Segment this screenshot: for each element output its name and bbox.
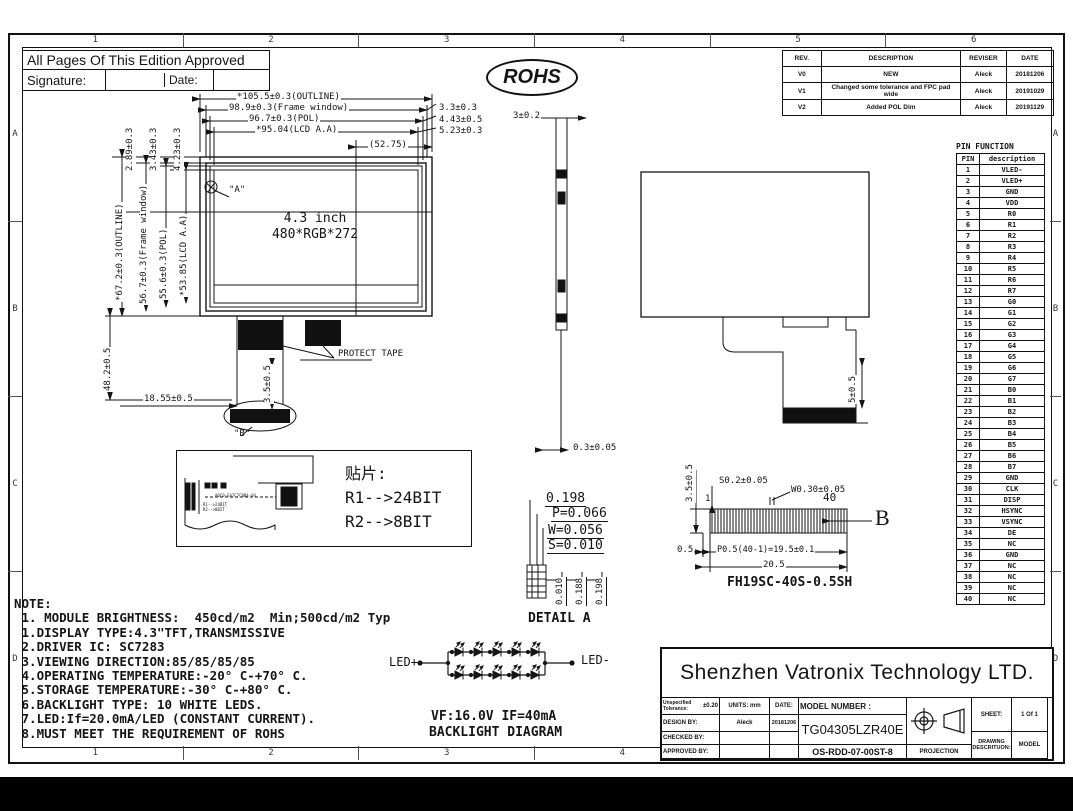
pin-row: 15 G2	[957, 319, 1045, 330]
revision-row: V1 Changed some tolerance and FPC pad wi…	[783, 83, 1054, 100]
pin-row: 11 R6	[957, 275, 1045, 286]
tolerance-label: Unspecified Tolerance:	[663, 700, 701, 712]
approval-box: All Pages Of This Edition Approved Signa…	[22, 50, 270, 91]
pin-description: DE	[980, 528, 1045, 539]
pin-description: R0	[980, 209, 1045, 220]
smt-tiny-chip-label: A0C0-EA7C7C0B4-04	[215, 494, 256, 498]
rev-date: 20191029	[1006, 83, 1053, 100]
pin-description: R4	[980, 253, 1045, 264]
rev-id: V0	[783, 67, 822, 83]
detail-a-dim-1: 0.198	[545, 492, 586, 507]
company-name: Shenzhen Vatronix Technology LTD.	[662, 649, 1052, 698]
callout-a-label: "A"	[228, 186, 246, 196]
pin-description: GND	[980, 187, 1045, 198]
checked-date-value	[770, 732, 799, 745]
revision-header-row: REV.DESCRIPTIONREVISERDATE	[783, 51, 1054, 67]
units-cell: UNITS: mm	[720, 698, 770, 715]
approved-date-value	[770, 745, 799, 759]
designer-name: Aleck	[720, 715, 770, 732]
dim-top-left-3: 4.23±0.3	[174, 127, 184, 172]
pin-number: 16	[957, 330, 980, 341]
pin-row: 29 GND	[957, 473, 1045, 484]
pin-row: 39 NC	[957, 583, 1045, 594]
pin-number: 7	[957, 231, 980, 242]
dim-rear-pad: 5±0.5	[849, 375, 859, 404]
revision-header-cell: DATE	[1006, 51, 1053, 67]
pin-description: G1	[980, 308, 1045, 319]
dim-right-1: 3.3±0.3	[438, 104, 478, 114]
pin-number: 24	[957, 418, 980, 429]
connector-pin-last: 40	[822, 492, 837, 504]
pin-number: 11	[957, 275, 980, 286]
pin-description: R5	[980, 264, 1045, 275]
pin-number: 19	[957, 363, 980, 374]
pin-row: 37 NC	[957, 561, 1045, 572]
signature-field[interactable]	[105, 70, 164, 90]
pin-number: 35	[957, 539, 980, 550]
pin-row: 28 B7	[957, 462, 1045, 473]
design-by-label: DESIGN BY:	[662, 715, 720, 732]
led-minus-label: LED-	[580, 654, 611, 667]
connector-dim-space: S0.2±0.05	[718, 477, 769, 487]
smt-option-text: 贴片: R1-->24BIT R2-->8BIT	[345, 462, 441, 534]
dim-aa-height: *53.85(LCD A.A)	[180, 214, 190, 297]
revision-row: V2 Added POL Dim Aleck 20191129	[783, 100, 1054, 116]
detail-a-dim-3: W=0.056	[547, 524, 604, 539]
rev-id: V2	[783, 100, 822, 116]
pin-description: G6	[980, 363, 1045, 374]
pin-row: 8 R3	[957, 242, 1045, 253]
pin-number: 26	[957, 440, 980, 451]
pin-row: 4 VDD	[957, 198, 1045, 209]
pin-row: 13 G0	[957, 297, 1045, 308]
dim-fpc-offset: 18.55±0.5	[143, 395, 194, 405]
pin-row: 23 B2	[957, 407, 1045, 418]
rev-description: Changed some tolerance and FPC pad wide	[821, 83, 961, 100]
pin-description: NC	[980, 539, 1045, 550]
pin-number: 38	[957, 572, 980, 583]
bottom-black-bar	[0, 777, 1073, 811]
pin-table-title: PIN FUNCTION	[956, 142, 1045, 151]
pin-number: 8	[957, 242, 980, 253]
detail-a-dim-2: P=0.066	[551, 507, 608, 522]
pin-description: VSYNC	[980, 517, 1045, 528]
display-resolution: 480*RGB*272	[250, 227, 380, 243]
model-number-label: MODEL NUMBER :	[799, 698, 907, 715]
pin-row: 31 DISP	[957, 495, 1045, 506]
pin-description: B0	[980, 385, 1045, 396]
pin-row: 35 NC	[957, 539, 1045, 550]
pin-header-cell: PIN	[957, 154, 980, 165]
display-spec: 4.3 inch 480*RGB*272	[250, 211, 380, 243]
approved-by-value	[720, 745, 770, 759]
smt-option-r2: R2-->8BIT	[345, 510, 441, 534]
dim-outline-width: *105.5±0.3(OUTLINE)	[236, 93, 341, 103]
pin-description: GND	[980, 550, 1045, 561]
pin-description: B5	[980, 440, 1045, 451]
smt-tiny-r2: R2-->8BIT	[203, 508, 225, 512]
pin-row: 25 B4	[957, 429, 1045, 440]
revision-row: V0 NEW Aleck 20181206	[783, 67, 1054, 83]
pin-number: 6	[957, 220, 980, 231]
pin-row: 12 R7	[957, 286, 1045, 297]
pin-row: 34 DE	[957, 528, 1045, 539]
doc-number: OS-RDD-07-00ST-8	[799, 745, 907, 759]
pin-number: 21	[957, 385, 980, 396]
connector-pin-first: 1	[704, 495, 711, 505]
pin-row: 19 G6	[957, 363, 1045, 374]
note-line: 4.OPERATING TEMPERATURE:-20° C-+70° C.	[14, 669, 390, 683]
pin-description: B6	[980, 451, 1045, 462]
pin-row: 20 G7	[957, 374, 1045, 385]
pin-description: G3	[980, 330, 1045, 341]
pin-number: 32	[957, 506, 980, 517]
pin-number: 18	[957, 352, 980, 363]
pin-number: 3	[957, 187, 980, 198]
pin-description: NC	[980, 594, 1045, 605]
pin-row: 26 B5	[957, 440, 1045, 451]
detail-a-caption: DETAIL A	[527, 612, 592, 626]
connector-part-number: FH19SC-40S-0.5SH	[726, 576, 853, 590]
design-date: 20181206	[770, 715, 799, 732]
rev-reviser: Aleck	[961, 100, 1006, 116]
pin-description: VLED-	[980, 165, 1045, 176]
dim-pol-height: 55.6±0.3(POL)	[160, 228, 170, 300]
pin-number: 1	[957, 165, 980, 176]
projection-symbol-cell	[907, 698, 972, 745]
pin-number: 25	[957, 429, 980, 440]
date-label-cell: DATE:	[770, 698, 799, 715]
pin-number: 2	[957, 176, 980, 187]
note-line: 1. MODULE BRIGHTNESS: 450cd/m2 Min;500cd…	[14, 611, 390, 625]
rev-reviser: Aleck	[961, 83, 1006, 100]
pin-row: 14 G1	[957, 308, 1045, 319]
callout-b-label: "B"	[233, 430, 251, 440]
connector-dim-width: W0.30±0.05	[790, 486, 846, 496]
sheet-value-cell: 1 Of 1	[1012, 698, 1048, 732]
pin-number: 36	[957, 550, 980, 561]
dim-side-bottom: 0.3±0.05	[572, 444, 617, 454]
pin-description: NC	[980, 583, 1045, 594]
pin-row: 27 B6	[957, 451, 1045, 462]
pin-number: 28	[957, 462, 980, 473]
pin-description: CLK	[980, 484, 1045, 495]
notes-section: NOTE: 1. MODULE BRIGHTNESS: 450cd/m2 Min…	[14, 597, 390, 741]
rohs-badge: ROHS	[486, 59, 578, 96]
tolerance-value: ±0.20	[703, 703, 718, 709]
detail-a-dim-4: S=0.010	[547, 539, 604, 554]
rev-date: 20181206	[1006, 67, 1053, 83]
pin-description: G2	[980, 319, 1045, 330]
rev-description: NEW	[821, 67, 961, 83]
dim-top-left-1: 2.89±0.3	[126, 127, 136, 172]
connector-callout-b: B	[874, 506, 891, 530]
side-view-lines	[540, 118, 586, 450]
dim-right-2: 4.43±0.5	[438, 116, 483, 126]
pin-row: 21 B0	[957, 385, 1045, 396]
pin-number: 29	[957, 473, 980, 484]
revision-header-cell: REVISER	[961, 51, 1006, 67]
pin-header-cell: description	[980, 154, 1045, 165]
pin-number: 30	[957, 484, 980, 495]
pin-number: 5	[957, 209, 980, 220]
pin-number: 33	[957, 517, 980, 528]
dim-pol-width: 96.7±0.3(POL)	[248, 115, 320, 125]
dim-half-width: (52.75)	[368, 141, 408, 151]
backlight-lines	[418, 642, 574, 680]
pin-description: G4	[980, 341, 1045, 352]
pin-description: NC	[980, 572, 1045, 583]
revision-header-cell: REV.	[783, 51, 822, 67]
pin-row: 33 VSYNC	[957, 517, 1045, 528]
revision-header-cell: DESCRIPTION	[821, 51, 961, 67]
note-line: 8.MUST MEET THE REQUIREMENT OF ROHS	[14, 727, 390, 741]
pin-row: 32 HSYNC	[957, 506, 1045, 517]
pin-description: B3	[980, 418, 1045, 429]
model-word-cell: MODEL	[1012, 732, 1048, 759]
pin-number: 20	[957, 374, 980, 385]
note-line: 1.DISPLAY TYPE:4.3"TFT,TRANSMISSIVE	[14, 626, 390, 640]
connector-dim-height: 3.5±0.5	[686, 463, 696, 503]
tolerance-cell: Unspecified Tolerance: ±0.20	[662, 698, 720, 715]
pin-description: R3	[980, 242, 1045, 253]
dim-side-thickness: 3±0.2	[512, 112, 541, 122]
note-line: 6.BACKLIGHT TYPE: 10 WHITE LEDS.	[14, 698, 390, 712]
pin-description: B7	[980, 462, 1045, 473]
note-line: 7.LED:If=20.0mA/LED (CONSTANT CURRENT).	[14, 712, 390, 726]
projection-label: PROJECTION	[907, 745, 972, 759]
pin-number: 31	[957, 495, 980, 506]
pin-description: GND	[980, 473, 1045, 484]
connector-dim-end: 0.5	[676, 546, 694, 556]
pin-description: G5	[980, 352, 1045, 363]
pin-number: 14	[957, 308, 980, 319]
title-block: Shenzhen Vatronix Technology LTD. Unspec…	[660, 647, 1054, 761]
dim-outline-height: *67.2±0.3(OUTLINE)	[116, 202, 126, 302]
pin-table: PINdescription 1 VLED- 2 VLED+ 3 GND 4 V…	[956, 153, 1045, 605]
date-field[interactable]	[213, 70, 269, 90]
pin-row: 38 NC	[957, 572, 1045, 583]
pin-description: G0	[980, 297, 1045, 308]
dim-frame-width: 98.9±0.3(Frame window)	[228, 104, 349, 114]
front-view-tapes	[230, 320, 341, 423]
signature-label: Signature:	[23, 73, 105, 88]
backlight-spec: VF:16.0V IF=40mA	[430, 710, 557, 724]
pin-number: 15	[957, 319, 980, 330]
connector-dim-total: 20.5	[762, 561, 786, 571]
pin-description: VLED+	[980, 176, 1045, 187]
date-label: Date:	[164, 73, 213, 87]
checked-by-value	[720, 732, 770, 745]
pin-row: 16 G3	[957, 330, 1045, 341]
pin-description: R1	[980, 220, 1045, 231]
notes-title: NOTE:	[14, 597, 390, 611]
dim-aa-width: *95.04(LCD A.A)	[255, 126, 338, 136]
led-plus-label: LED+	[388, 656, 419, 669]
smt-option-r1: R1-->24BIT	[345, 486, 441, 510]
pin-number: 4	[957, 198, 980, 209]
pin-description: R2	[980, 231, 1045, 242]
pin-row: 7 R2	[957, 231, 1045, 242]
pin-description: HSYNC	[980, 506, 1045, 517]
pin-description: NC	[980, 561, 1045, 572]
backlight-caption: BACKLIGHT DIAGRAM	[428, 726, 563, 740]
pin-number: 34	[957, 528, 980, 539]
detail-a-vdim-1: 0.010	[556, 577, 567, 606]
pin-number: 27	[957, 451, 980, 462]
approved-by-label: APPROVED BY:	[662, 745, 720, 759]
pin-number: 40	[957, 594, 980, 605]
pin-row: 36 GND	[957, 550, 1045, 561]
pin-description: VDD	[980, 198, 1045, 209]
connector-dim-pitch: P0.5(40-1)=19.5±0.1	[716, 546, 815, 555]
pin-row: 40 NC	[957, 594, 1045, 605]
pin-number: 39	[957, 583, 980, 594]
pin-description: R7	[980, 286, 1045, 297]
rev-id: V1	[783, 83, 822, 100]
pin-row: 5 R0	[957, 209, 1045, 220]
dim-tape-height: 3.5±0.5	[264, 364, 274, 404]
display-size: 4.3 inch	[250, 211, 380, 227]
revision-table: REV.DESCRIPTIONREVISERDATE V0 NEW Aleck …	[782, 50, 1054, 116]
pin-description: B2	[980, 407, 1045, 418]
rear-view-lines	[641, 172, 869, 423]
dim-fpc-length: 48.2±0.5	[104, 347, 114, 392]
detail-a-vdim-3: 0.198	[596, 577, 607, 606]
drawing-description-label: DRAWING DESCRITUON:	[972, 732, 1012, 759]
pin-number: 9	[957, 253, 980, 264]
pin-number: 17	[957, 341, 980, 352]
pin-row: 9 R4	[957, 253, 1045, 264]
pin-header-row: PINdescription	[957, 154, 1045, 165]
smt-title: 贴片:	[345, 462, 441, 486]
pin-row: 1 VLED-	[957, 165, 1045, 176]
pin-description: G7	[980, 374, 1045, 385]
pin-number: 37	[957, 561, 980, 572]
pin-description: B1	[980, 396, 1045, 407]
pin-row: 30 CLK	[957, 484, 1045, 495]
projection-symbol-icon	[908, 701, 970, 741]
pin-number: 13	[957, 297, 980, 308]
pin-row: 6 R1	[957, 220, 1045, 231]
note-line: 3.VIEWING DIRECTION:85/85/85/85	[14, 655, 390, 669]
pin-number: 23	[957, 407, 980, 418]
pin-function-section: PIN FUNCTION PINdescription 1 VLED- 2 VL…	[956, 142, 1045, 605]
approval-title: All Pages Of This Edition Approved	[23, 51, 269, 70]
pin-row: 17 G4	[957, 341, 1045, 352]
pin-number: 22	[957, 396, 980, 407]
pin-row: 18 G5	[957, 352, 1045, 363]
pin-row: 3 GND	[957, 187, 1045, 198]
pin-row: 10 R5	[957, 264, 1045, 275]
detail-a-vdim-2: 0.188	[576, 577, 587, 606]
pin-number: 12	[957, 286, 980, 297]
checked-by-label: CHECKED BY:	[662, 732, 720, 745]
pin-row: 2 VLED+	[957, 176, 1045, 187]
pin-description: B4	[980, 429, 1045, 440]
rev-reviser: Aleck	[961, 67, 1006, 83]
note-line: 2.DRIVER IC: SC7283	[14, 640, 390, 654]
pin-description: DISP	[980, 495, 1045, 506]
rev-description: Added POL Dim	[821, 100, 961, 116]
dim-right-3: 5.23±0.3	[438, 127, 483, 137]
pin-number: 10	[957, 264, 980, 275]
protect-tape-label: PROTECT TAPE	[337, 350, 404, 360]
dim-frame-height: 56.7±0.3(Frame window)	[140, 184, 150, 305]
model-number-value: TG04305LZR40E	[799, 715, 907, 745]
pin-row: 22 B1	[957, 396, 1045, 407]
pin-description: R6	[980, 275, 1045, 286]
sheet-label-cell: SHEET:	[972, 698, 1012, 732]
note-line: 5.STORAGE TEMPERATURE:-30° C-+80° C.	[14, 683, 390, 697]
rev-date: 20191129	[1006, 100, 1053, 116]
pin-row: 24 B3	[957, 418, 1045, 429]
dim-top-left-2: 3.43±0.3	[150, 127, 160, 172]
datasheet-drawing: 123456 123456 ABCD ABCD	[0, 0, 1073, 811]
